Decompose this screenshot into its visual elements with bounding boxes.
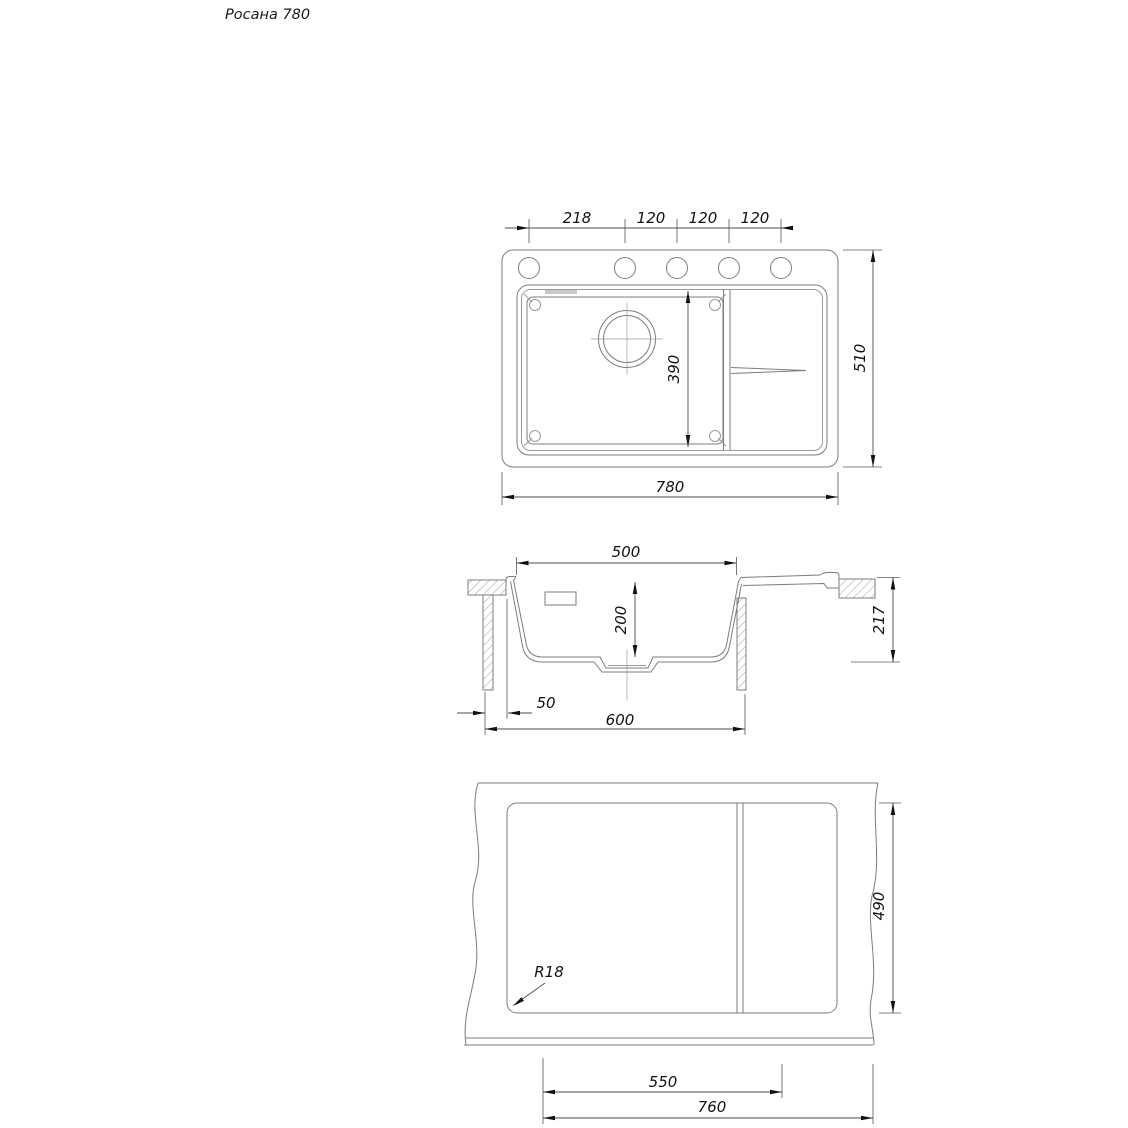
faucet-hole-4 <box>719 258 740 279</box>
cutout-view: R18 490 550 760 <box>464 783 901 1124</box>
dim-label-390: 390 <box>665 355 683 384</box>
overflow-slot <box>545 290 577 294</box>
dim-cutout-height: 490 <box>870 803 901 1013</box>
bowl-corner-chamfer <box>718 438 726 446</box>
drawing-canvas: Росана 780 <box>0 0 1128 1128</box>
dim-bowl-top-width: 500 <box>517 543 737 575</box>
dim-arrow <box>891 650 896 662</box>
bowl-floor <box>527 297 723 444</box>
dim-arrow <box>891 803 896 815</box>
dim-arrow <box>891 578 896 590</box>
countertop-right <box>839 579 875 598</box>
faucet-hole-5 <box>771 258 792 279</box>
bowl-corner-chamfer <box>524 294 532 302</box>
dim-label-490: 490 <box>870 892 888 921</box>
dim-arrow <box>770 1090 782 1095</box>
bowl-corner-chamfer <box>524 438 532 446</box>
dim-label-510: 510 <box>851 344 869 373</box>
dim-arrow <box>725 561 737 566</box>
dim-label-120c: 120 <box>741 209 770 227</box>
break-line-left <box>465 783 479 1045</box>
dim-label-120a: 120 <box>637 209 666 227</box>
dim-arrow <box>543 1090 555 1095</box>
faucet-hole-1 <box>519 258 540 279</box>
overflow-opening <box>545 592 576 605</box>
drainboard-top <box>741 573 839 581</box>
dim-arrow <box>891 1001 896 1013</box>
dim-bowl-depth: 200 <box>612 582 637 657</box>
dim-label-550: 550 <box>649 1073 678 1091</box>
countertop-left <box>468 580 506 595</box>
bowl-corner-arc <box>530 431 541 442</box>
drainboard-groove <box>731 368 806 371</box>
drawing-title: Росана 780 <box>225 7 310 23</box>
cutout-outline <box>507 803 837 1013</box>
dim-arrow <box>517 561 529 566</box>
dim-arrow <box>686 435 691 447</box>
dim-arrow <box>517 226 529 231</box>
dim-arrow <box>871 250 876 262</box>
drainboard-groove <box>731 371 806 374</box>
top-view: 218 120 120 120 390 510 780 <box>502 209 882 505</box>
bowl-corner-chamfer <box>718 294 726 302</box>
dim-label-200: 200 <box>612 606 630 635</box>
dim-label-218: 218 <box>563 209 592 227</box>
bowl-corner-arc <box>710 431 721 442</box>
dim-edge-offset: 50 <box>457 599 556 735</box>
dim-cutout-width: 760 <box>543 1064 873 1124</box>
dim-arrow <box>473 711 485 716</box>
cabinet-wall-right <box>737 598 746 690</box>
cabinet-wall-left <box>483 595 493 690</box>
dim-arrow <box>543 1116 555 1121</box>
dim-cabinet-width: 600 <box>485 694 745 735</box>
dim-arrow <box>861 1116 873 1121</box>
dim-arrow <box>781 226 793 231</box>
dim-bowl-length: 390 <box>665 291 690 447</box>
dim-hole-spacing: 218 120 120 120 <box>505 209 793 243</box>
dim-overall-width: 780 <box>502 472 838 505</box>
technical-drawing-page: Росана 780 <box>0 0 1128 1128</box>
dim-label-500: 500 <box>612 543 641 561</box>
leader-arrow <box>513 997 524 1006</box>
callout-corner-radius: R18 <box>513 963 564 1006</box>
dim-arrow <box>633 582 638 594</box>
dim-arrow <box>871 455 876 467</box>
dim-label-600: 600 <box>606 711 635 729</box>
dim-label-780: 780 <box>656 478 685 496</box>
drainboard-bottom <box>743 584 839 589</box>
dim-label-217: 217 <box>870 605 888 634</box>
dim-label-50: 50 <box>536 694 555 712</box>
dim-label-760: 760 <box>698 1098 727 1116</box>
faucet-hole-3 <box>667 258 688 279</box>
dim-arrow <box>733 727 745 732</box>
dim-arrow <box>502 495 514 500</box>
dim-label-120b: 120 <box>689 209 718 227</box>
dim-arrow <box>633 645 638 657</box>
dim-arrow <box>826 495 838 500</box>
dim-arrow <box>485 727 497 732</box>
dim-overall-height: 510 <box>843 250 882 467</box>
section-view: 500 200 217 50 <box>457 543 900 735</box>
dim-label-r18: R18 <box>534 963 564 981</box>
dim-main-section-width: 550 <box>543 1058 782 1124</box>
dim-arrow <box>508 711 520 716</box>
faucet-hole-2 <box>615 258 636 279</box>
